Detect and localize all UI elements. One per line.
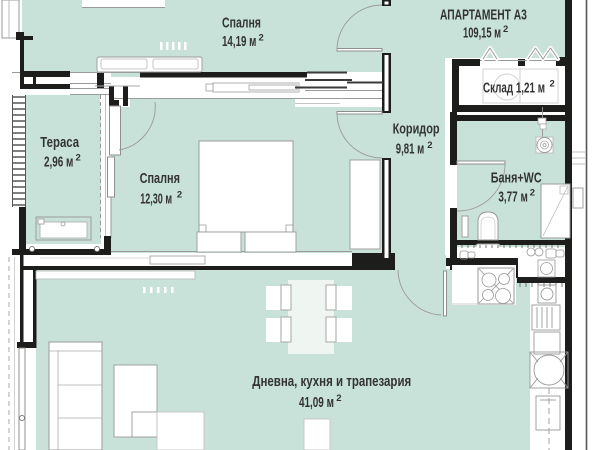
svg-text:12,30 м: 12,30 м <box>140 190 172 207</box>
svg-text:Дневна, кухня и трапезария: Дневна, кухня и трапезария <box>252 373 411 390</box>
svg-text:2: 2 <box>550 79 555 90</box>
svg-text:2: 2 <box>427 140 432 151</box>
svg-text:2: 2 <box>503 24 508 35</box>
svg-text:Спалня: Спалня <box>140 170 180 187</box>
svg-text:3,77 м: 3,77 м <box>498 188 527 204</box>
svg-text:14,19 м: 14,19 м <box>222 33 256 49</box>
svg-text:Баня+WC: Баня+WC <box>491 169 542 186</box>
svg-text:2: 2 <box>336 393 341 404</box>
svg-text:Тераса: Тераса <box>40 134 79 151</box>
svg-text:2: 2 <box>76 153 81 164</box>
svg-text:9,81 м: 9,81 м <box>396 141 424 158</box>
svg-text:Спалня: Спалня <box>222 14 261 31</box>
svg-text:Склад 1,21 м: Склад 1,21 м <box>483 80 545 96</box>
svg-text:2: 2 <box>530 188 535 199</box>
svg-text:2,96 м: 2,96 м <box>44 154 73 170</box>
svg-text:109,15 м: 109,15 м <box>463 24 501 41</box>
svg-text:Коридор: Коридор <box>393 120 440 137</box>
svg-text:2: 2 <box>259 33 264 44</box>
svg-text:2: 2 <box>177 190 182 201</box>
svg-text:41,09 м: 41,09 м <box>299 394 334 410</box>
svg-text:АПАРТАМЕНТ А3: АПАРТАМЕНТ А3 <box>440 7 527 23</box>
